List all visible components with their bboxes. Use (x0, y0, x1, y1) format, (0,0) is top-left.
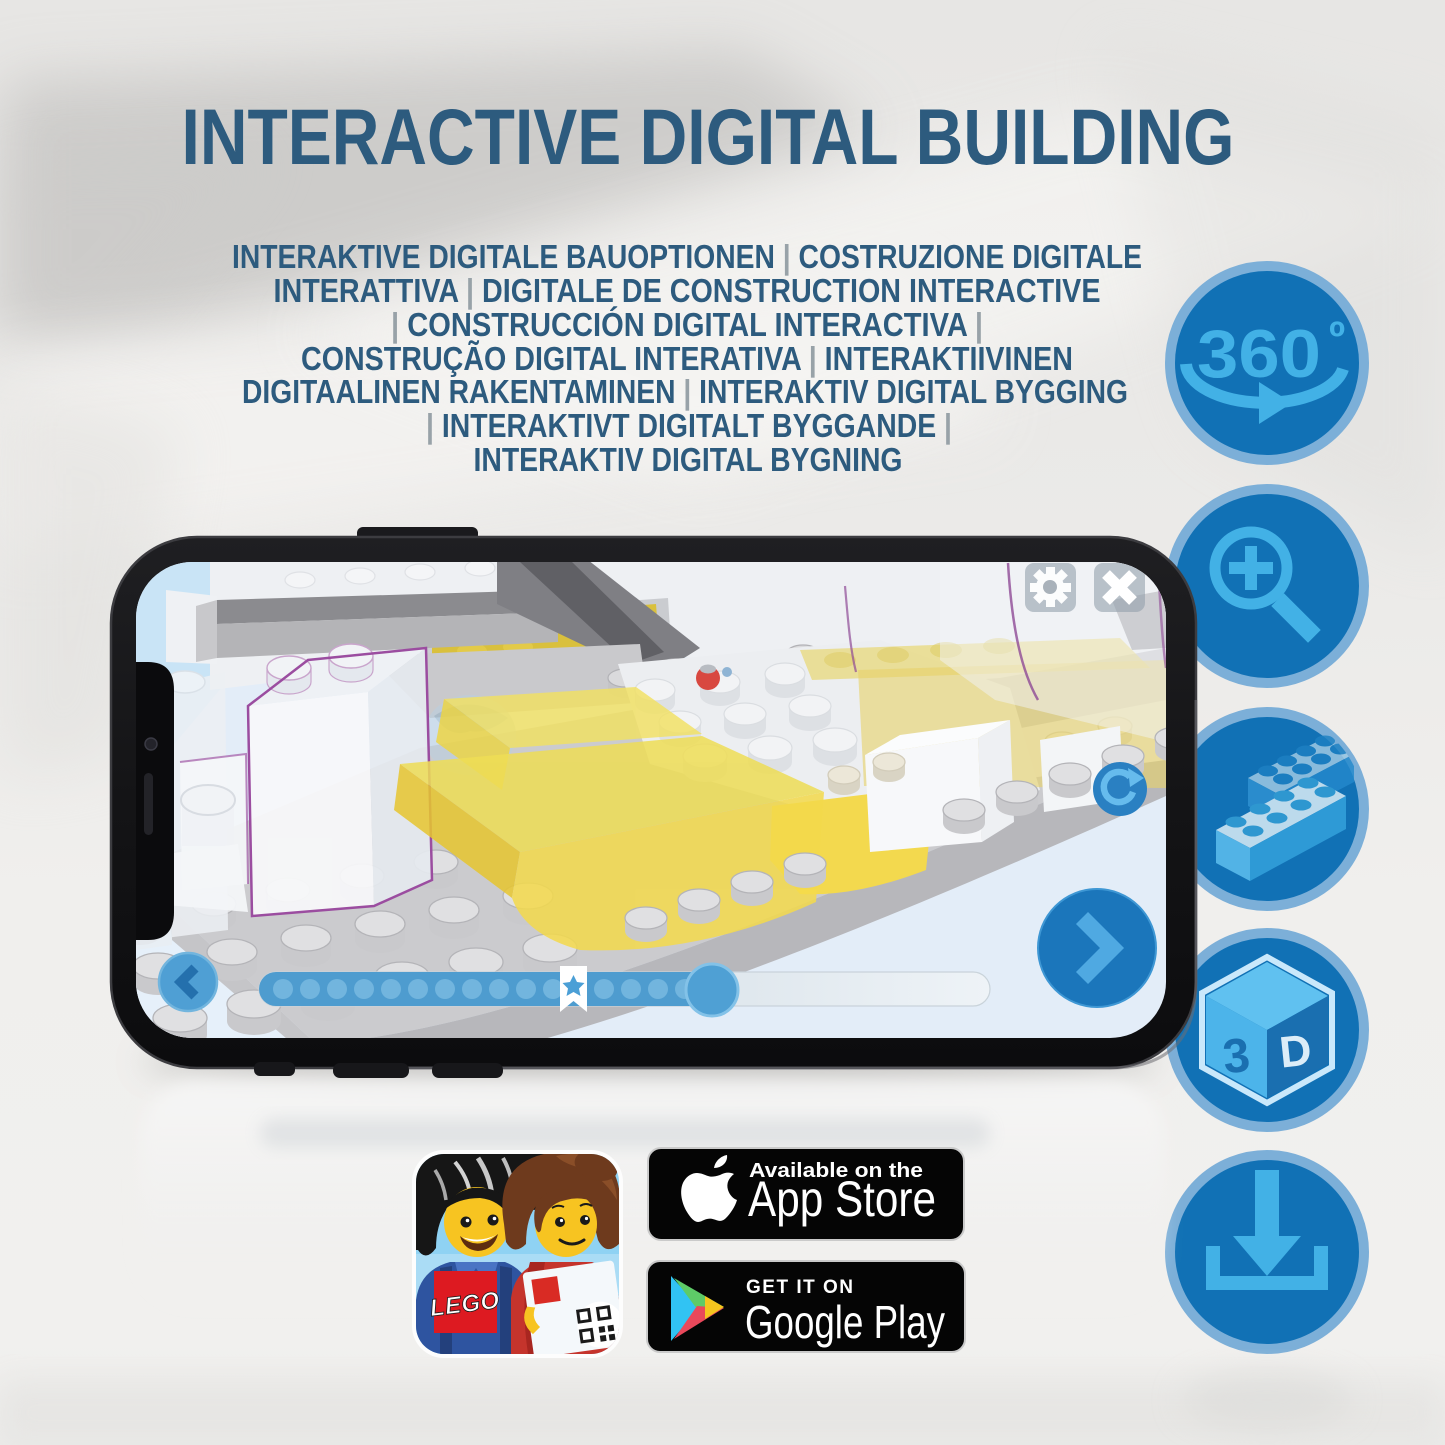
svg-text:INTERACTIVE DIGITAL BUILDING: INTERACTIVE DIGITAL BUILDING (182, 92, 1235, 181)
svg-text:360: 360 (1197, 316, 1321, 392)
svg-text:| CONSTRUCCIÓN DIGITAL INTERAC: | CONSTRUCCIÓN DIGITAL INTERACTIVA | (391, 306, 983, 343)
svg-text:Google Play: Google Play (745, 1296, 945, 1348)
svg-text:App Store: App Store (748, 1171, 936, 1227)
svg-text:INTERAKTIV DIGITAL BYGNING: INTERAKTIV DIGITAL BYGNING (474, 441, 903, 478)
svg-text:INTERATTIVA | DIGITALE DE CONS: INTERATTIVA | DIGITALE DE CONSTRUCTION I… (274, 272, 1101, 309)
svg-text:º: º (1329, 313, 1345, 362)
svg-text:3: 3 (1220, 1029, 1252, 1085)
svg-text:D: D (1277, 1026, 1314, 1078)
svg-text:GET IT ON: GET IT ON (746, 1277, 855, 1298)
svg-text:DIGITAALINEN RAKENTAMINEN | IN: DIGITAALINEN RAKENTAMINEN | INTERAKTIV D… (242, 373, 1128, 410)
svg-text:| INTERAKTIVT DIGITALT BYGGAND: | INTERAKTIVT DIGITALT BYGGANDE | (426, 407, 952, 444)
svg-text:INTERAKTIVE DIGITALE BAUOPTION: INTERAKTIVE DIGITALE BAUOPTIONEN | COSTR… (232, 238, 1142, 275)
svg-text:CONSTRUÇÃO DIGITAL INTERATIVA: CONSTRUÇÃO DIGITAL INTERATIVA | INTERAKT… (301, 340, 1073, 377)
